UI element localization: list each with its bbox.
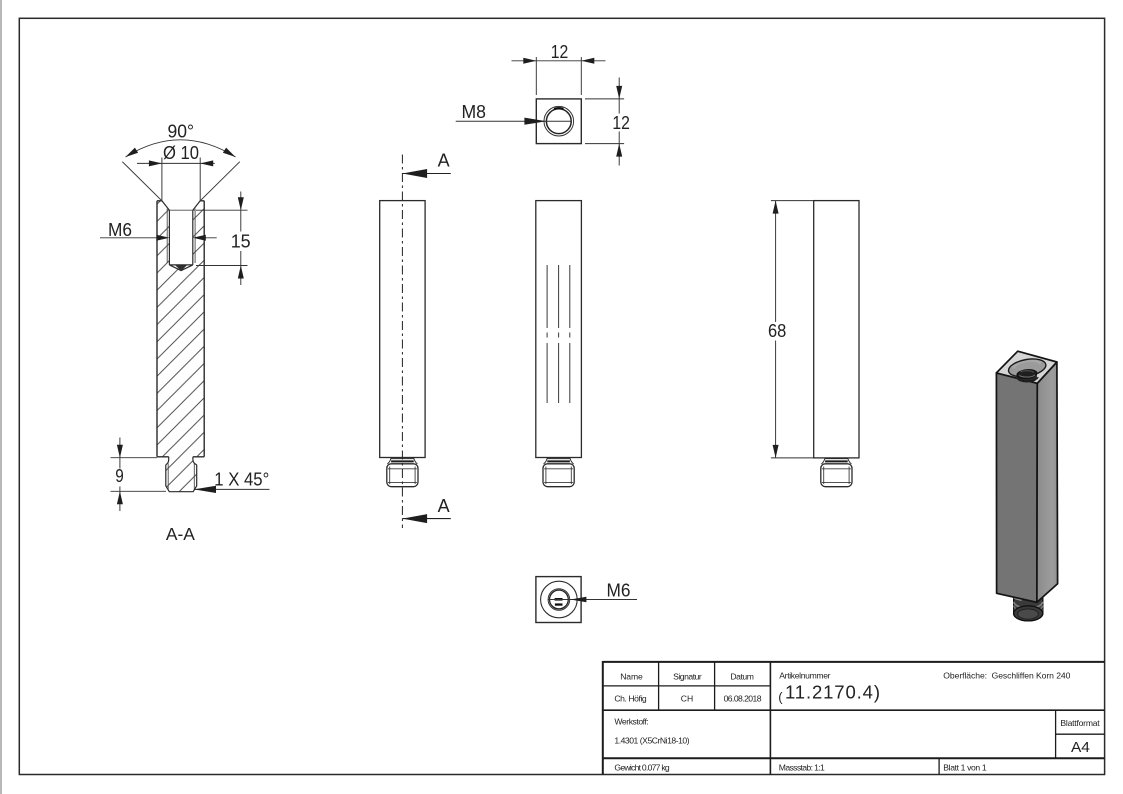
- svg-text:11.2170.4): 11.2170.4): [785, 682, 880, 703]
- svg-text:Artikelnummer: Artikelnummer: [779, 670, 830, 680]
- svg-text:A4: A4: [1071, 740, 1090, 756]
- svg-text:90°: 90°: [168, 121, 195, 141]
- svg-text:9: 9: [115, 466, 124, 486]
- svg-text:15: 15: [231, 232, 251, 252]
- svg-text:Ch. Höfig: Ch. Höfig: [614, 694, 647, 704]
- svg-text:Blattformat: Blattformat: [1060, 718, 1100, 728]
- svg-text:12: 12: [551, 42, 569, 62]
- svg-text:(: (: [778, 689, 783, 704]
- svg-text:Werkstoff:: Werkstoff:: [614, 717, 648, 727]
- svg-text:A: A: [438, 496, 450, 516]
- svg-text:Signatur: Signatur: [673, 671, 702, 681]
- svg-text:1 X 45°: 1 X 45°: [214, 469, 269, 489]
- svg-text:1.4301 (X5CrNi18-10): 1.4301 (X5CrNi18-10): [614, 736, 689, 746]
- svg-text:CH: CH: [681, 694, 693, 704]
- svg-text:Oberfläche: Geschliffen Korn: Oberfläche: Geschliffen Korn 240: [943, 670, 1070, 680]
- svg-text:68: 68: [768, 320, 786, 341]
- svg-text:Name: Name: [620, 671, 643, 681]
- svg-text:12: 12: [612, 113, 630, 133]
- svg-text:Gewicht 0.077 kg: Gewicht 0.077 kg: [614, 762, 670, 772]
- svg-text:M6: M6: [108, 220, 132, 240]
- svg-text:Datum: Datum: [730, 671, 754, 681]
- svg-text:A: A: [438, 151, 450, 171]
- svg-text:Massstab: 1:1: Massstab: 1:1: [779, 762, 825, 772]
- svg-text:Ø 10: Ø 10: [163, 143, 199, 163]
- svg-text:A-A: A-A: [166, 524, 195, 544]
- svg-text:M6: M6: [607, 580, 631, 600]
- svg-text:Blatt 1 von 1: Blatt 1 von 1: [943, 762, 987, 772]
- svg-text:M8: M8: [462, 102, 487, 122]
- svg-text:06.08.2018: 06.08.2018: [724, 694, 762, 704]
